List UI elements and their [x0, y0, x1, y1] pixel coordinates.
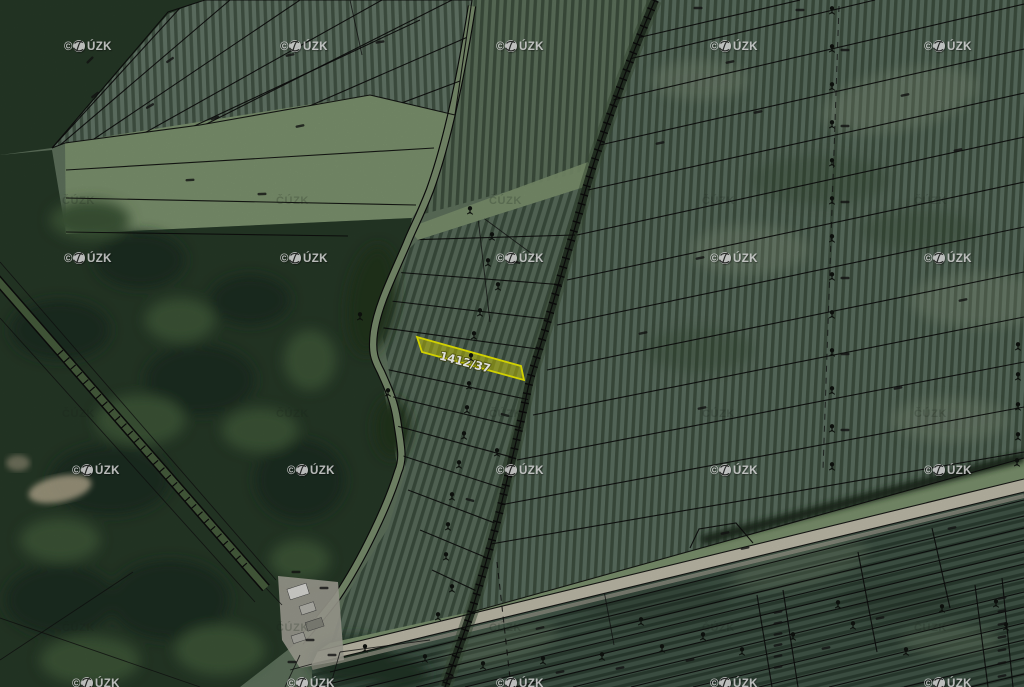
cadastral-map[interactable]: © ÚZK ČÚZK — [0, 0, 1024, 687]
map-viewport[interactable]: © ÚZK ČÚZK — [0, 0, 1024, 687]
photo-grain — [0, 0, 1024, 687]
